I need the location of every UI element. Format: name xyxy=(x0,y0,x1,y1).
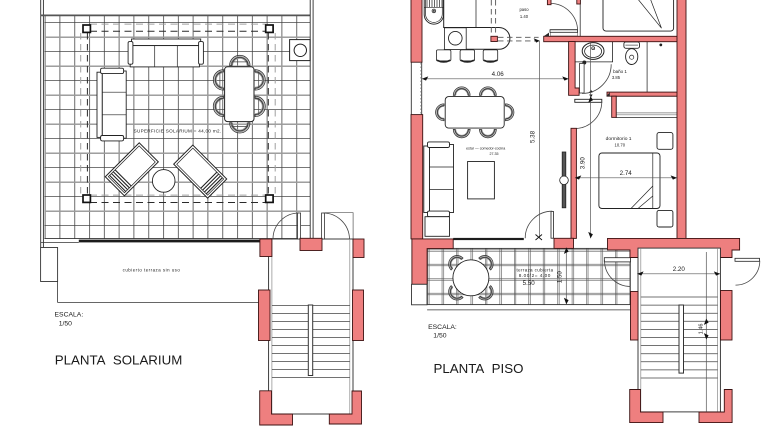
svg-text:dormitorio 1: dormitorio 1 xyxy=(606,136,632,142)
svg-text:2.20: 2.20 xyxy=(673,266,686,273)
svg-text:27.35: 27.35 xyxy=(490,152,499,156)
svg-text:3.85: 3.85 xyxy=(612,75,621,80)
svg-text:SUPERFICIE SOLARIUM = 44,00 m2: SUPERFICIE SOLARIUM = 44,00 m2. xyxy=(134,129,222,134)
svg-text:paso: paso xyxy=(519,7,529,12)
svg-text:1/50: 1/50 xyxy=(433,332,446,339)
svg-text:2.74: 2.74 xyxy=(620,170,633,177)
svg-text:terraza cubierta: terraza cubierta xyxy=(517,268,554,273)
svg-text:1/50: 1/50 xyxy=(59,320,72,327)
svg-text:ESCALA:: ESCALA: xyxy=(55,312,84,319)
svg-text:5.38: 5.38 xyxy=(529,130,536,143)
svg-text:PLANTA SOLARIUM: PLANTA SOLARIUM xyxy=(55,352,183,367)
svg-text:estar — comedor-cocina: estar — comedor-cocina xyxy=(466,147,505,151)
svg-text:1.50: 1.50 xyxy=(556,271,563,284)
svg-text:1.40: 1.40 xyxy=(520,14,529,19)
svg-text:8.00/2= 4.00: 8.00/2= 4.00 xyxy=(519,273,551,278)
svg-text:ESCALA:: ESCALA: xyxy=(428,324,457,331)
svg-text:baño 1: baño 1 xyxy=(613,69,627,74)
svg-text:PLANTA PISO: PLANTA PISO xyxy=(434,361,524,376)
svg-text:cubierto terraza sin uso: cubierto terraza sin uso xyxy=(123,267,181,272)
svg-text:4.06: 4.06 xyxy=(492,71,505,78)
svg-text:1.46: 1.46 xyxy=(698,324,704,335)
svg-text:5.50: 5.50 xyxy=(523,280,536,287)
svg-text:10.70: 10.70 xyxy=(615,142,626,147)
svg-text:3.90: 3.90 xyxy=(579,157,586,170)
